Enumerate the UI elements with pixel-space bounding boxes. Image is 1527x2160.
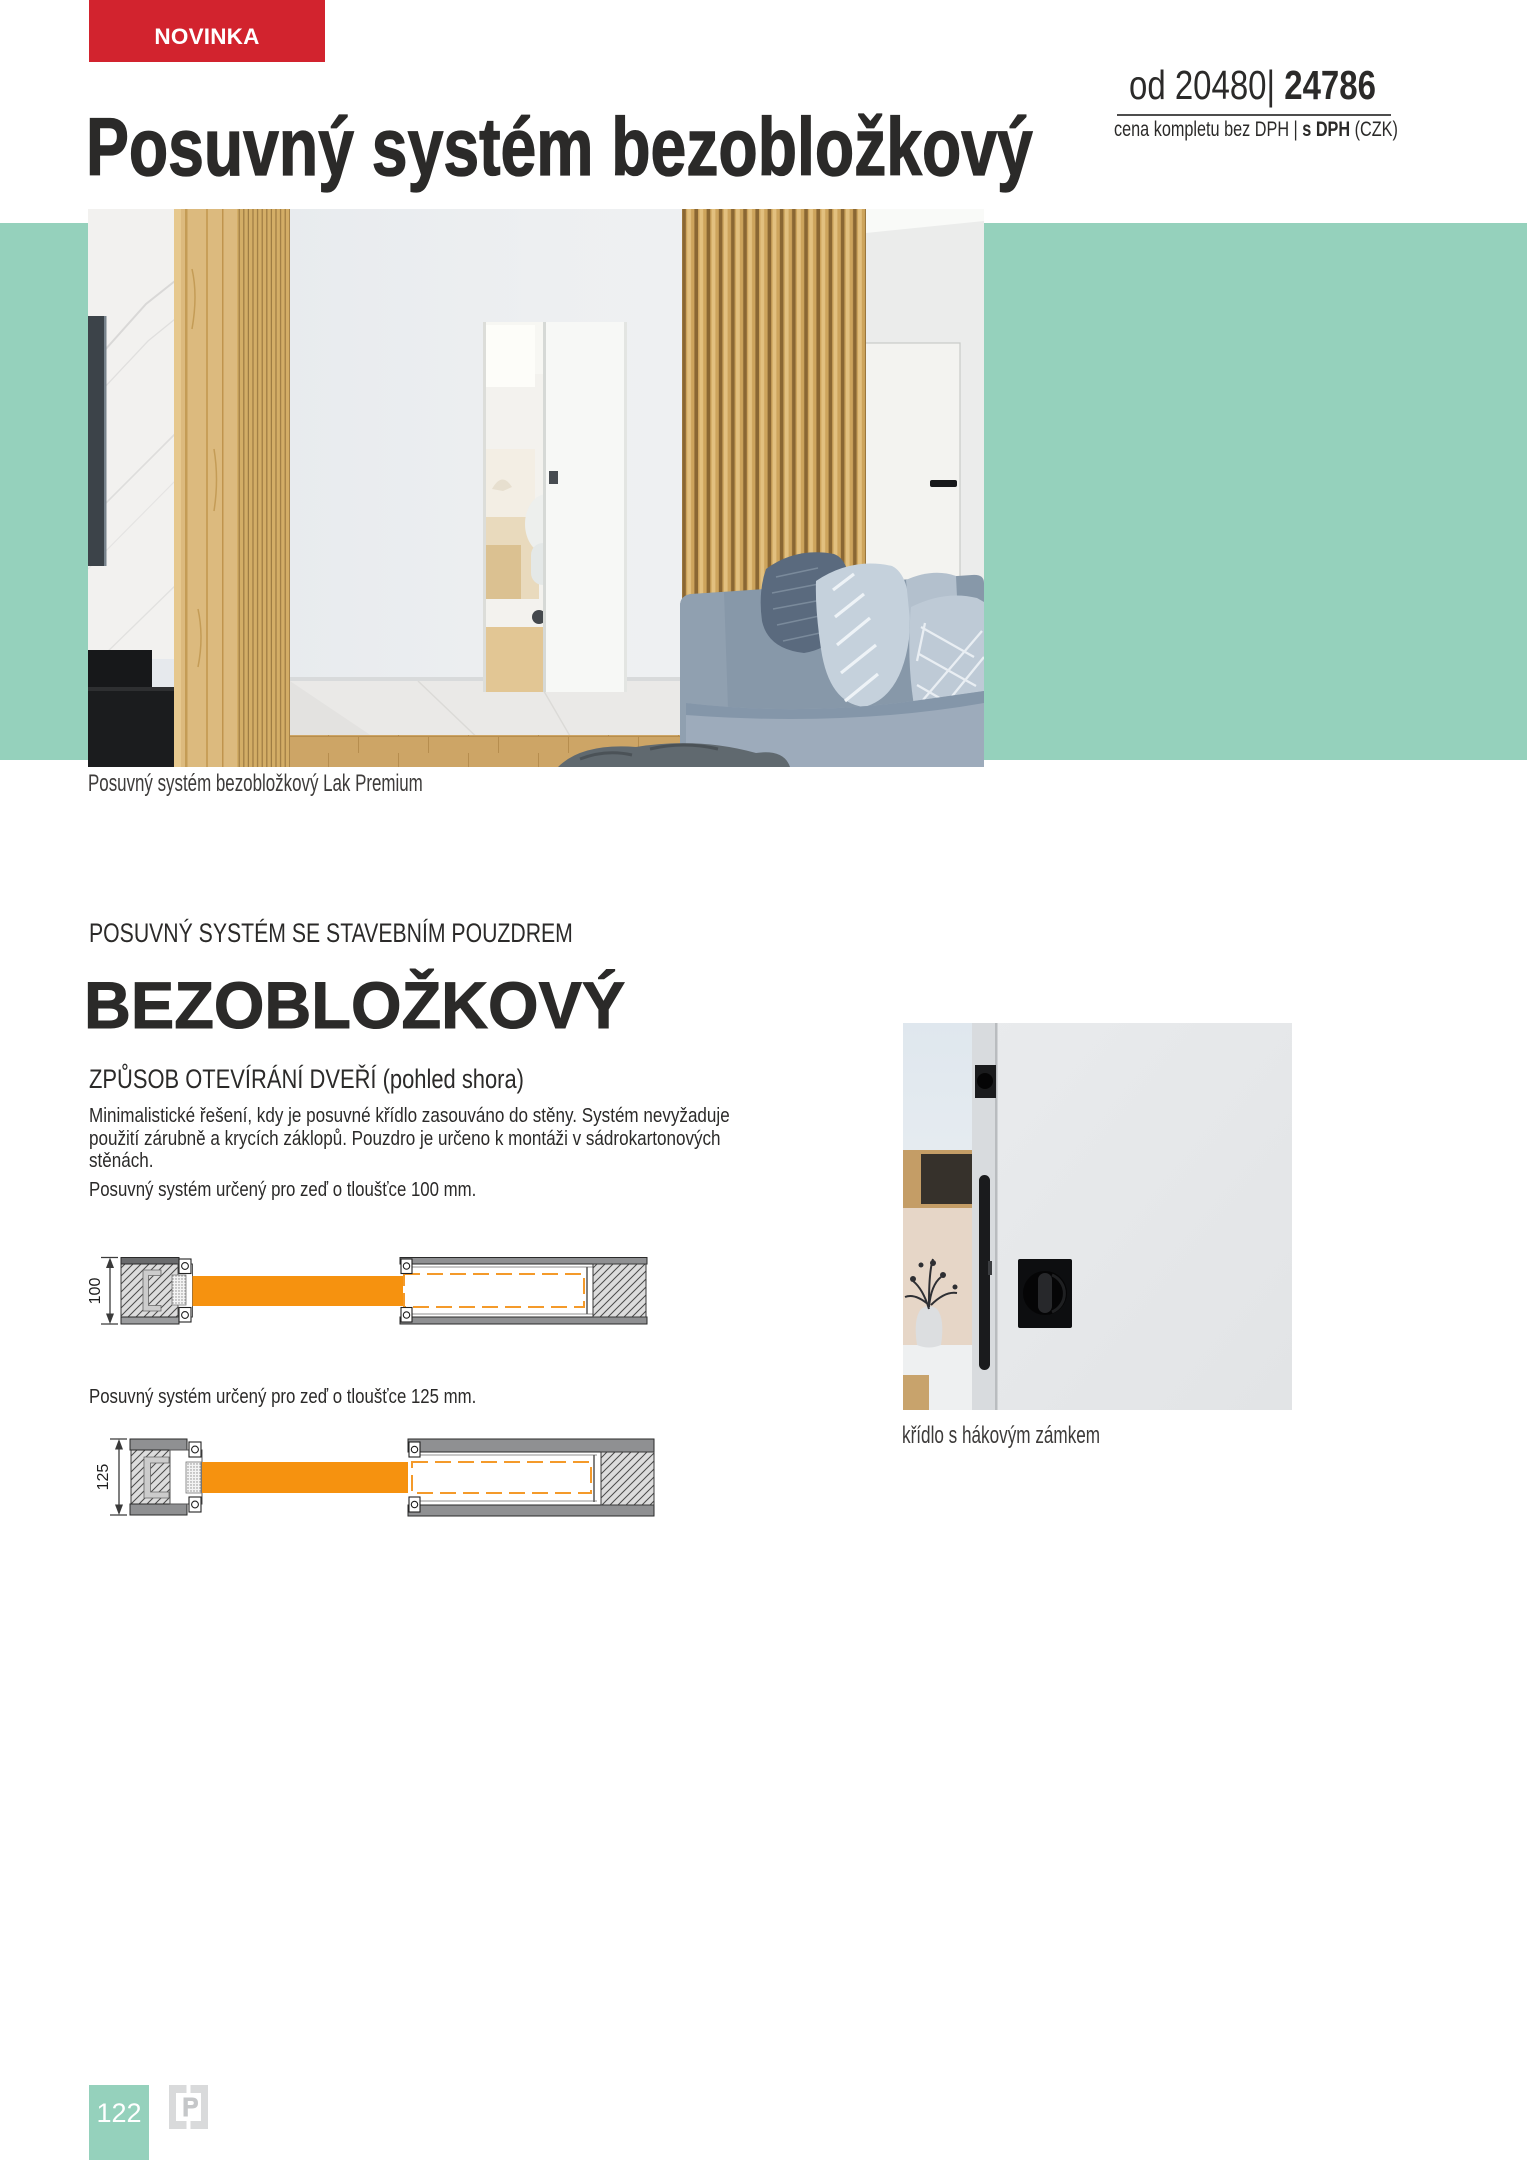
- svg-text:100: 100: [87, 1278, 104, 1305]
- svg-text:125: 125: [95, 1464, 112, 1491]
